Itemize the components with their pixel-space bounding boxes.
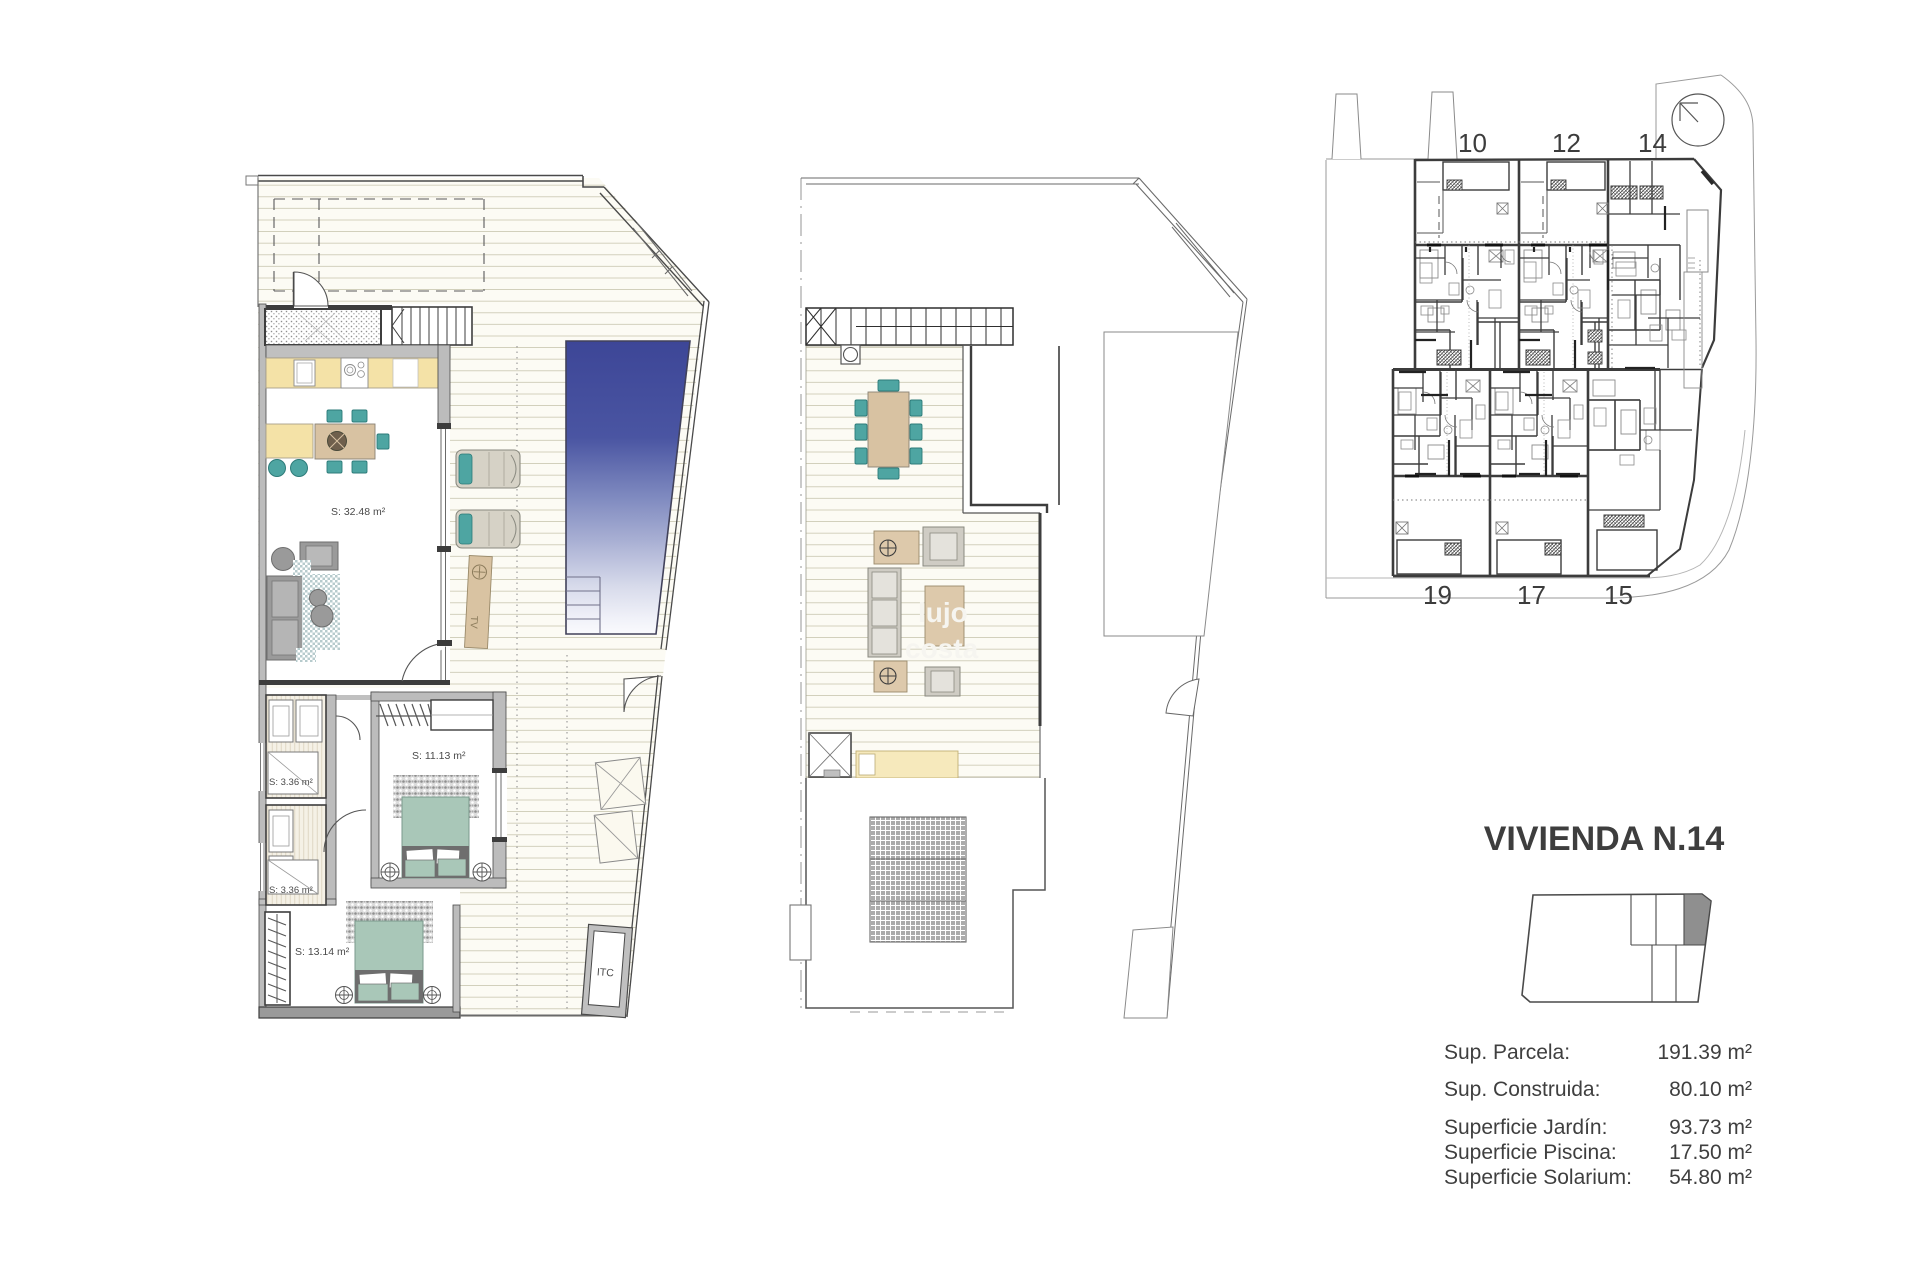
svg-text:Superficie Piscina:: Superficie Piscina: [1444,1141,1617,1164]
svg-text:TV: TV [467,616,479,630]
svg-text:S: 13.14 m²: S: 13.14 m² [295,946,350,958]
svg-text:12: 12 [1552,128,1581,158]
svg-text:S: 11.13 m²: S: 11.13 m² [412,750,466,762]
svg-text:17.50 m²: 17.50 m² [1669,1141,1752,1164]
svg-text:17: 17 [1517,580,1546,610]
svg-text:80.10 m²: 80.10 m² [1669,1078,1752,1101]
svg-text:15: 15 [1604,580,1633,610]
svg-text:93.73 m²: 93.73 m² [1669,1116,1752,1139]
svg-text:54.80 m²: 54.80 m² [1669,1166,1752,1189]
svg-text:S: 32.48 m²: S: 32.48 m² [331,506,386,518]
svg-text:VIVIENDA N.14: VIVIENDA N.14 [1484,820,1725,858]
svg-text:10: 10 [1458,128,1487,158]
svg-text:costa: costa [905,633,979,664]
svg-text:Superficie Solarium:: Superficie Solarium: [1444,1166,1632,1189]
svg-text:14: 14 [1638,128,1667,158]
svg-text:S: 3.36 m²: S: 3.36 m² [269,777,313,788]
svg-text:S: 3.36 m²: S: 3.36 m² [269,885,313,896]
svg-text:19: 19 [1423,580,1452,610]
svg-text:Superficie Jardín:: Superficie Jardín: [1444,1116,1607,1139]
svg-text:lujo: lujo [918,597,968,628]
svg-text:Sup. Parcela:: Sup. Parcela: [1444,1041,1570,1064]
svg-text:Sup. Construida:: Sup. Construida: [1444,1078,1600,1101]
svg-text:ITC: ITC [596,966,614,979]
svg-text:191.39 m²: 191.39 m² [1657,1041,1752,1064]
